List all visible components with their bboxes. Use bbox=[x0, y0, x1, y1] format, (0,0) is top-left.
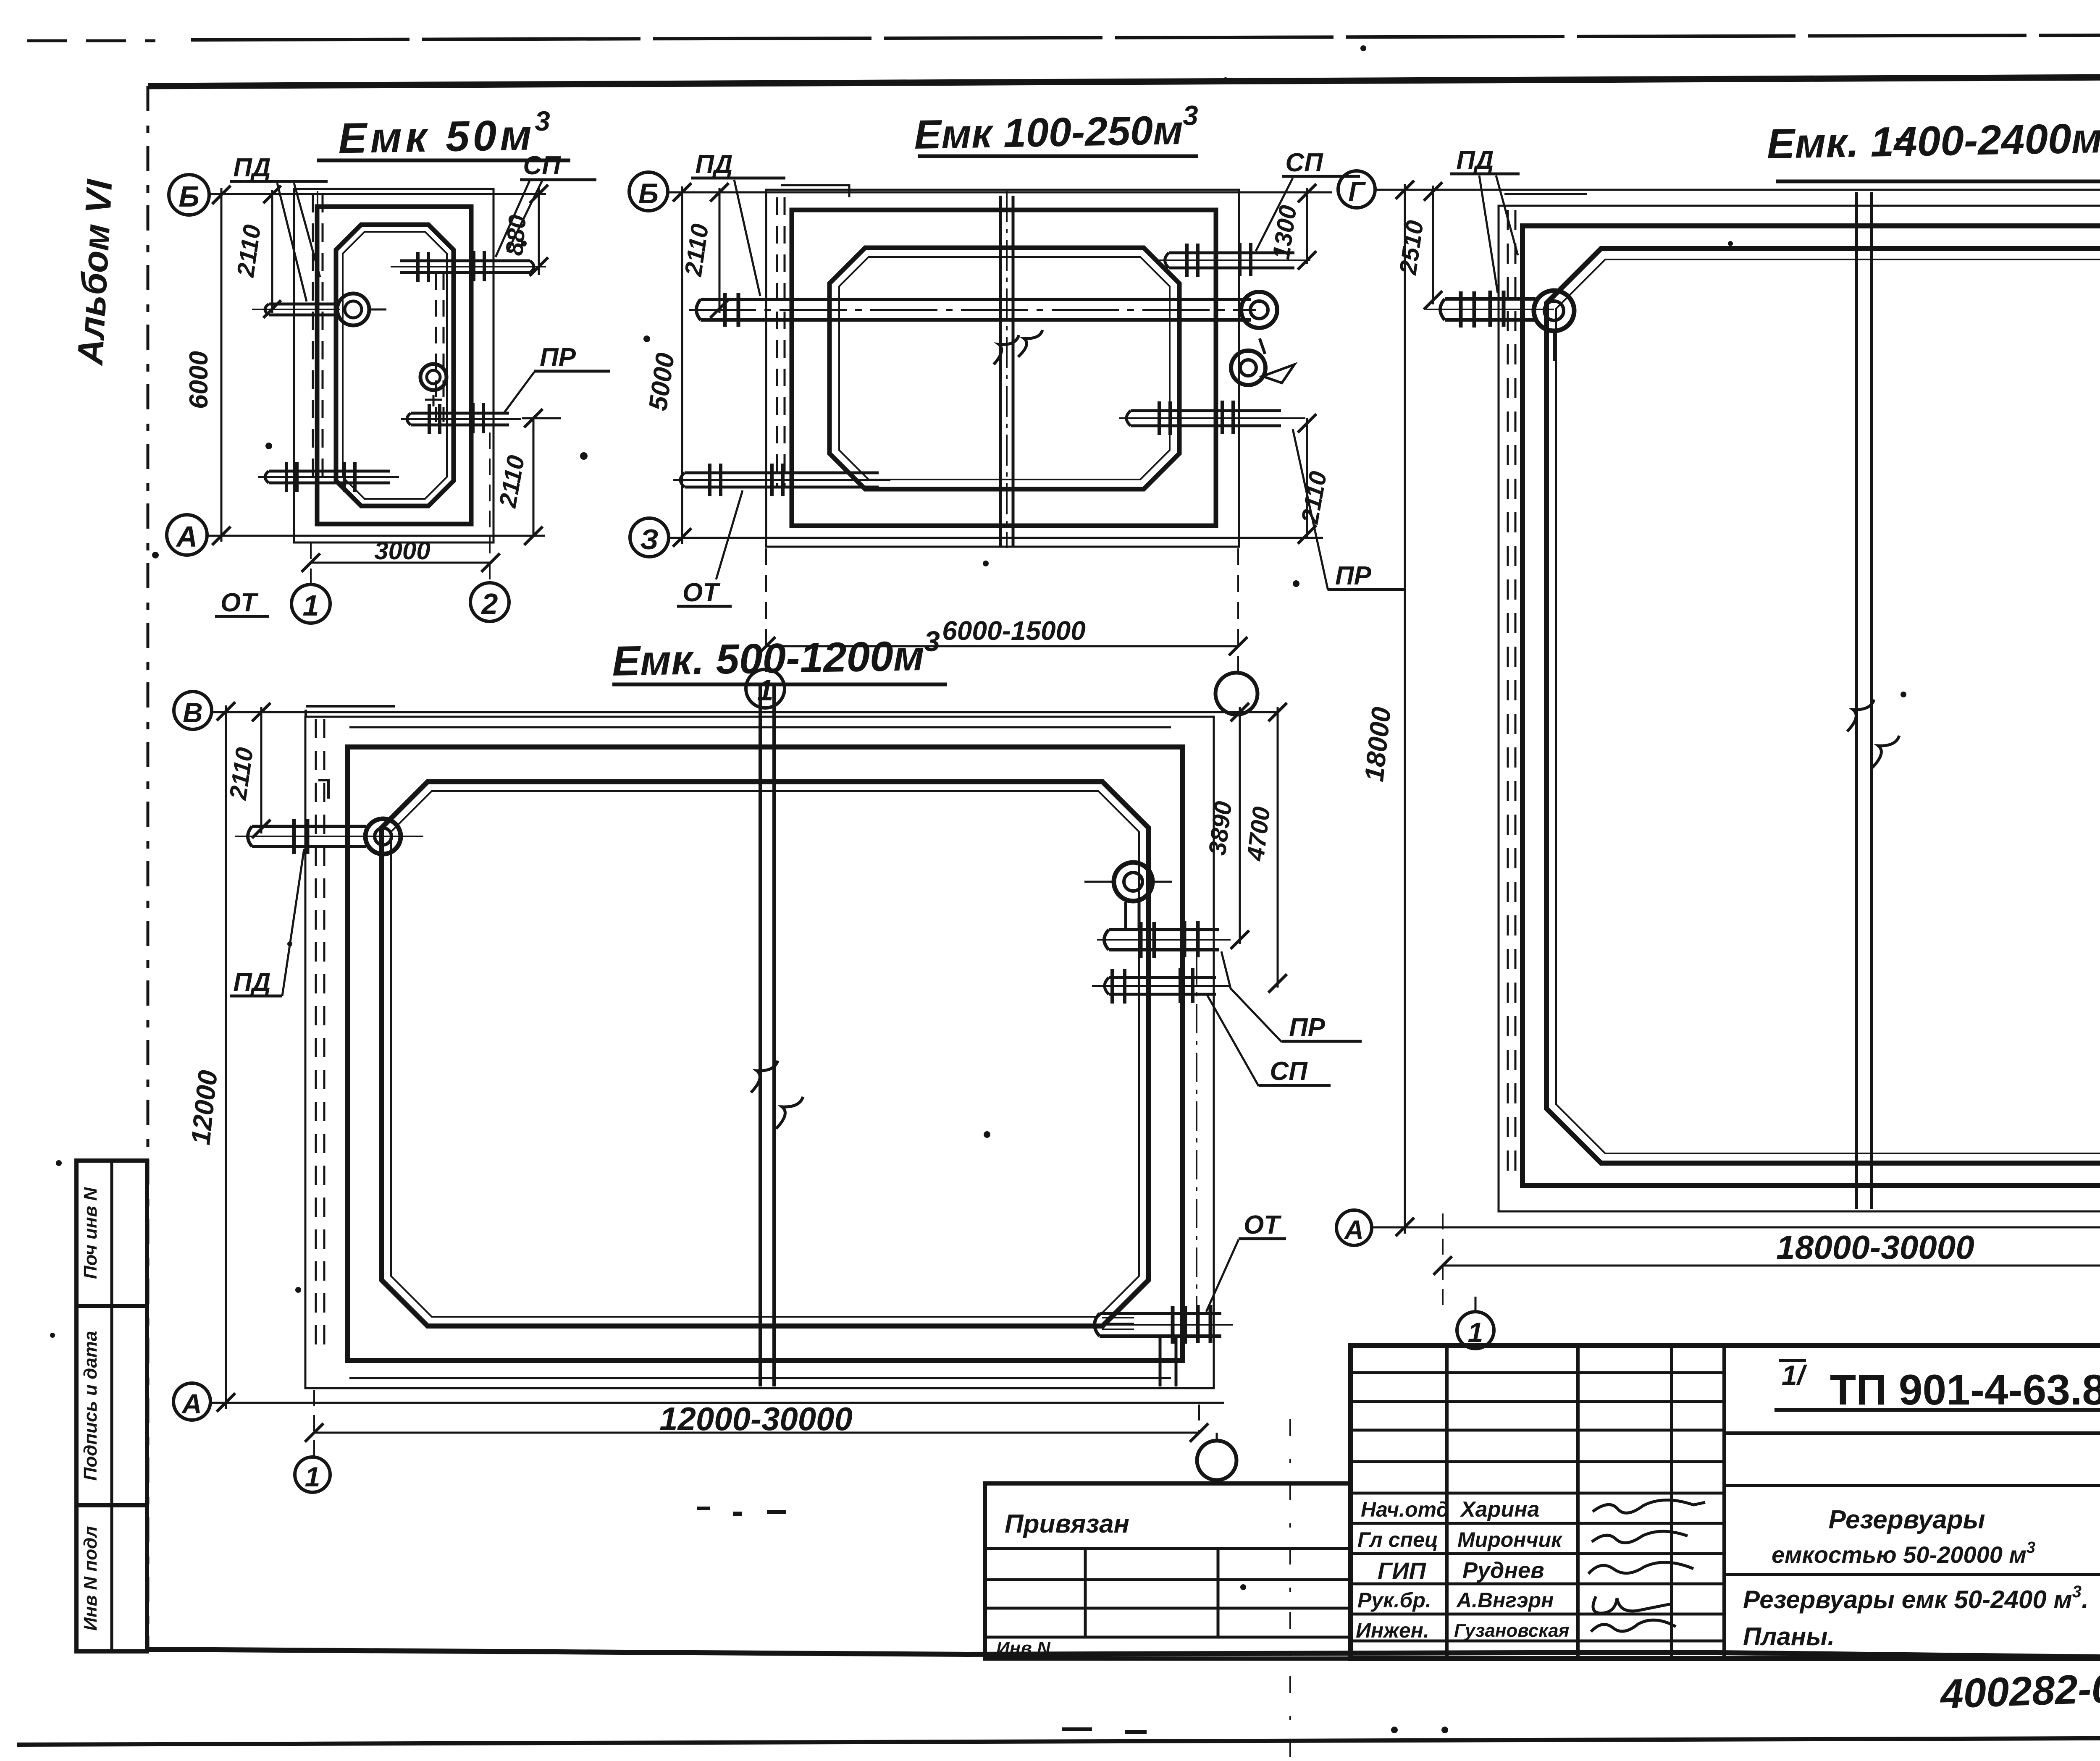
svg-text:Инв N подл: Инв N подл bbox=[80, 1526, 101, 1630]
svg-text:Гузановская: Гузановская bbox=[1454, 1620, 1570, 1641]
svg-text:1: 1 bbox=[305, 1461, 320, 1492]
svg-text:6000-15000: 6000-15000 bbox=[942, 616, 1086, 646]
svg-text:Резервуары: Резервуары bbox=[1828, 1505, 1985, 1534]
svg-text:ПД: ПД bbox=[233, 153, 270, 182]
svg-text:ПД: ПД bbox=[1456, 146, 1494, 175]
svg-text:З: З bbox=[640, 524, 659, 556]
svg-text:Харина: Харина bbox=[1459, 1497, 1539, 1522]
svg-text:1: 1 bbox=[1468, 1317, 1483, 1348]
svg-text:ОТ: ОТ bbox=[1244, 1211, 1282, 1240]
svg-text:Г: Г bbox=[1348, 176, 1366, 207]
svg-text:емкостью 50-20000 м3: емкостью 50-20000 м3 bbox=[1772, 1539, 2035, 1568]
svg-text:12000-30000: 12000-30000 bbox=[659, 1400, 853, 1437]
svg-text:1: 1 bbox=[303, 589, 319, 622]
svg-text:3000: 3000 bbox=[374, 537, 430, 565]
svg-text:А.Внгэрн: А.Внгэрн bbox=[1456, 1588, 1554, 1612]
svg-text:Нач.отд: Нач.отд bbox=[1361, 1498, 1449, 1521]
svg-text:ГИП: ГИП bbox=[1378, 1557, 1427, 1584]
svg-text:ПР: ПР bbox=[1289, 1013, 1326, 1042]
svg-text:ПР: ПР bbox=[1335, 561, 1372, 590]
svg-text:Инв N.: Инв N. bbox=[996, 1638, 1055, 1659]
svg-text:Б: Б bbox=[178, 180, 199, 213]
svg-text:Планы.: Планы. bbox=[1743, 1622, 1835, 1651]
svg-text:Емк 50м3: Емк 50м3 bbox=[338, 105, 554, 162]
svg-text:ПД: ПД bbox=[695, 150, 732, 179]
svg-text:Гл спец: Гл спец bbox=[1357, 1528, 1438, 1551]
svg-text:СП: СП bbox=[1285, 148, 1323, 177]
svg-text:А: А bbox=[181, 1388, 202, 1419]
svg-text:Б: Б bbox=[638, 178, 659, 210]
svg-text:Поч инв N: Поч инв N bbox=[80, 1187, 101, 1279]
svg-text:ОТ: ОТ bbox=[220, 588, 259, 617]
svg-text:СП: СП bbox=[1270, 1057, 1308, 1086]
svg-text:Подпись и дата: Подпись и дата bbox=[80, 1331, 101, 1481]
svg-text:Привязан: Привязан bbox=[1005, 1509, 1129, 1538]
svg-text:1/: 1/ bbox=[1782, 1360, 1808, 1391]
svg-text:Инжен.: Инжен. bbox=[1356, 1619, 1429, 1642]
svg-text:Рук.бр.: Рук.бр. bbox=[1357, 1588, 1431, 1612]
svg-text:2: 2 bbox=[481, 587, 498, 620]
svg-text:А: А bbox=[1344, 1215, 1364, 1245]
svg-text:В: В bbox=[183, 697, 203, 728]
svg-text:СП: СП bbox=[523, 151, 561, 180]
svg-text:ПД: ПД bbox=[233, 968, 270, 997]
svg-text:А: А bbox=[176, 520, 198, 553]
svg-text:6000: 6000 bbox=[184, 351, 213, 409]
svg-text:18000-30000: 18000-30000 bbox=[1776, 1229, 1974, 1266]
svg-text:ОТ: ОТ bbox=[682, 578, 721, 607]
svg-text:ПР: ПР bbox=[540, 343, 576, 372]
svg-text:Мирончик: Мирончик bbox=[1457, 1528, 1563, 1551]
svg-text:ТП 901-4-63.83-Т: ТП 901-4-63.83-Т bbox=[1830, 1366, 2100, 1414]
svg-text:400282-06: 400282-06 bbox=[1939, 1664, 2100, 1717]
svg-text:880: 880 bbox=[501, 214, 531, 257]
svg-text:Резервуары емк 50-2400 м3.: Резервуары емк 50-2400 м3. bbox=[1743, 1583, 2089, 1614]
svg-text:Руднев: Руднев bbox=[1462, 1558, 1544, 1583]
